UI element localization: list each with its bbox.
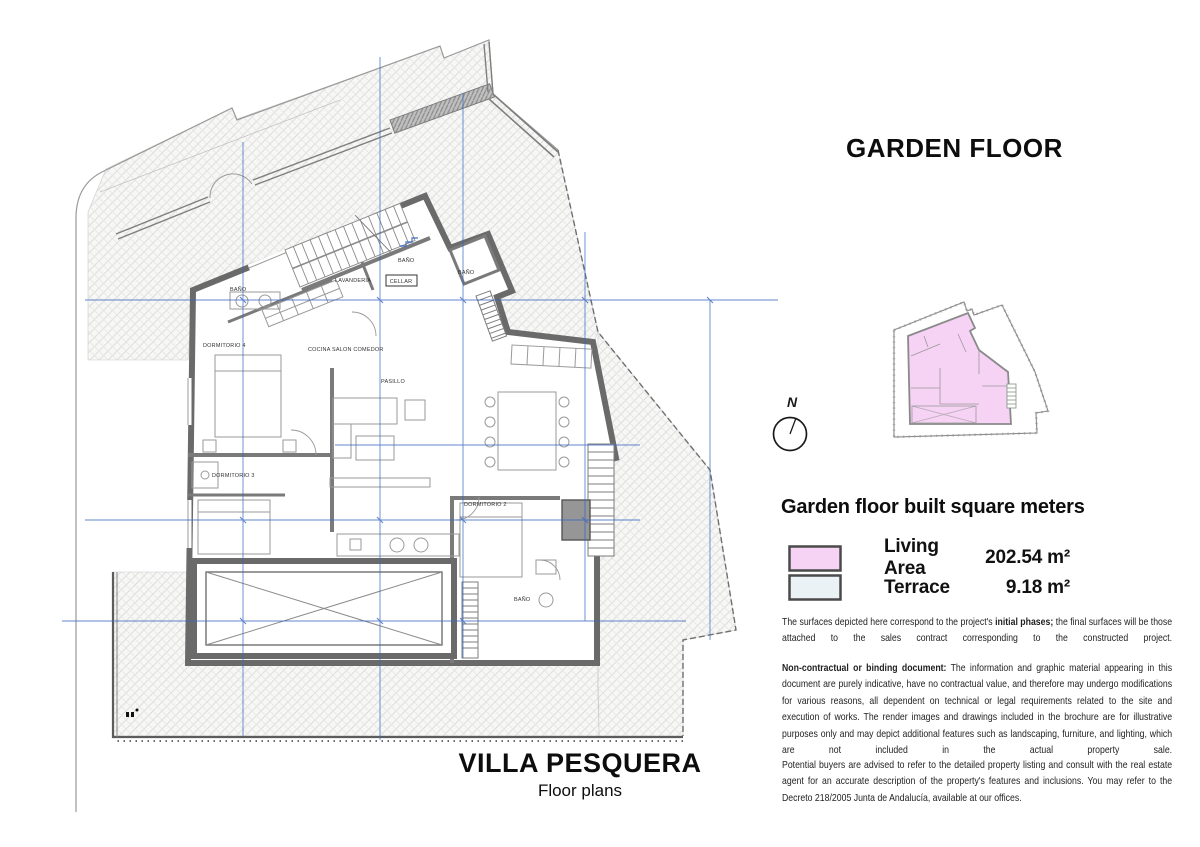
room-label: DORMITORIO 2 [464,502,507,508]
cellar-label: CELLAR [386,275,417,286]
project-title: VILLA PESQUERA [430,748,730,779]
room-label: BAÑO [514,596,531,603]
project-subtitle: Floor plans [430,781,730,801]
surfaces-note-pre: The surfaces depicted here correspond to… [782,616,995,628]
living-area-swatch [788,545,842,572]
legend-label: Terrace [884,577,984,599]
room-label: DORMITORIO 3 [212,473,255,479]
terrace-swatch [788,574,842,601]
legend-value: 202.54 m² [984,547,1070,569]
legend-row-terrace: Terrace 9.18 m² [788,574,1070,601]
disclaimer-paragraph: Non-contractual or binding document: The… [782,660,1172,758]
room-label: DORMITORIO 4 [203,343,246,349]
room-label: BAÑO [230,286,247,293]
room-label: BAÑO [398,257,415,264]
north-compass-icon: N [763,390,819,460]
pool-deposit [194,561,454,656]
north-label: N [787,394,798,410]
disclaimer-text: The information and graphic material app… [782,662,1172,756]
room-label: LAVANDERIA [335,278,371,284]
key-plan-thumbnail [878,294,1062,466]
project-title-block: VILLA PESQUERA Floor plans [430,748,730,801]
legend-heading: Garden floor built square meters [781,496,1085,519]
buyers-note: Potential buyers are advised to refer to… [782,757,1172,806]
brochure-page: DORMITORIO 4 BAÑO LAVANDERIA CELLAR BAÑO… [0,0,1200,847]
disclaimer-lead: Non-contractual or binding document: [782,662,946,674]
thumbnail-stairs [1007,384,1016,408]
room-label: PASILLO [381,379,405,385]
floor-plan-drawing: DORMITORIO 4 BAÑO LAVANDERIA CELLAR BAÑO… [0,0,790,847]
svg-text:CELLAR: CELLAR [390,279,413,285]
legend-value: 9.18 m² [984,577,1070,599]
room-label: BAÑO [458,269,475,276]
surfaces-note: The surfaces depicted here correspond to… [782,614,1172,647]
surfaces-note-bold: initial phases; [995,616,1053,628]
room-label: COCINA SALON COMEDOR [308,347,384,353]
floor-title: GARDEN FLOOR [846,133,1063,164]
